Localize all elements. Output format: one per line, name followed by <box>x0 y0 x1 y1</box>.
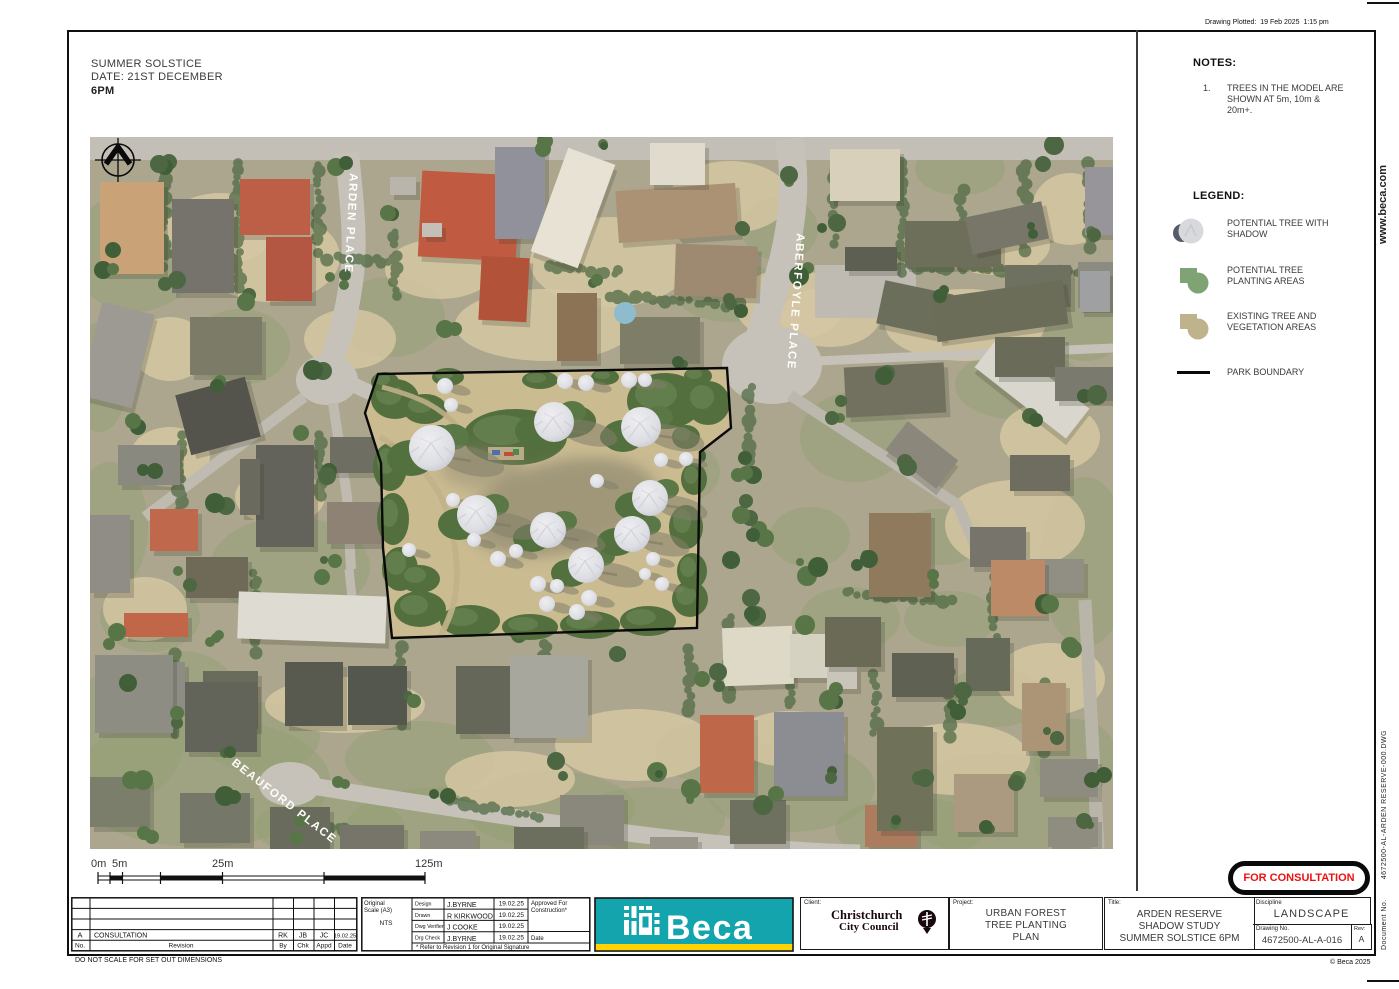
svg-text:Approved For: Approved For <box>531 901 567 907</box>
svg-text:J.BYRNE: J.BYRNE <box>447 936 477 943</box>
svg-text:J.BYRNE: J.BYRNE <box>447 902 477 909</box>
svg-text:A: A <box>77 931 82 940</box>
svg-text:Drg Check: Drg Check <box>415 935 440 941</box>
svg-text:19.02.25: 19.02.25 <box>499 934 525 941</box>
svg-text:* Refer to Revision 1 for Orig: * Refer to Revision 1 for Original Signa… <box>416 945 530 951</box>
svg-text:19.02.25: 19.02.25 <box>499 912 525 919</box>
svg-text:Design: Design <box>415 902 432 908</box>
svg-text:CONSULTATION: CONSULTATION <box>94 933 147 940</box>
svg-text:JB: JB <box>299 933 308 940</box>
svg-text:Dwg Verifier: Dwg Verifier <box>415 924 444 930</box>
svg-text:Appd: Appd <box>316 943 332 950</box>
svg-text:By: By <box>279 943 287 950</box>
svg-text:No.: No. <box>75 943 85 950</box>
svg-text:J COOKE: J COOKE <box>447 925 478 932</box>
svg-text:RK: RK <box>278 933 288 940</box>
svg-text:Chk: Chk <box>297 943 309 950</box>
svg-text:JC: JC <box>320 933 329 940</box>
svg-text:19.02.25: 19.02.25 <box>499 901 525 908</box>
svg-text:R KIRKWOOD: R KIRKWOOD <box>447 913 493 920</box>
svg-text:NTS: NTS <box>380 920 394 927</box>
svg-text:Date: Date <box>338 943 352 950</box>
svg-text:Date: Date <box>531 936 544 942</box>
svg-text:19.02.25: 19.02.25 <box>334 934 357 940</box>
svg-text:Revision: Revision <box>169 943 194 950</box>
svg-text:Original: Original <box>364 901 385 907</box>
svg-text:Construction*: Construction* <box>531 908 568 914</box>
svg-text:Drawn: Drawn <box>415 913 430 919</box>
svg-text:Scale (A3): Scale (A3) <box>364 908 392 914</box>
svg-text:Beca: Beca <box>666 909 753 947</box>
svg-text:19.02.25: 19.02.25 <box>499 923 525 930</box>
